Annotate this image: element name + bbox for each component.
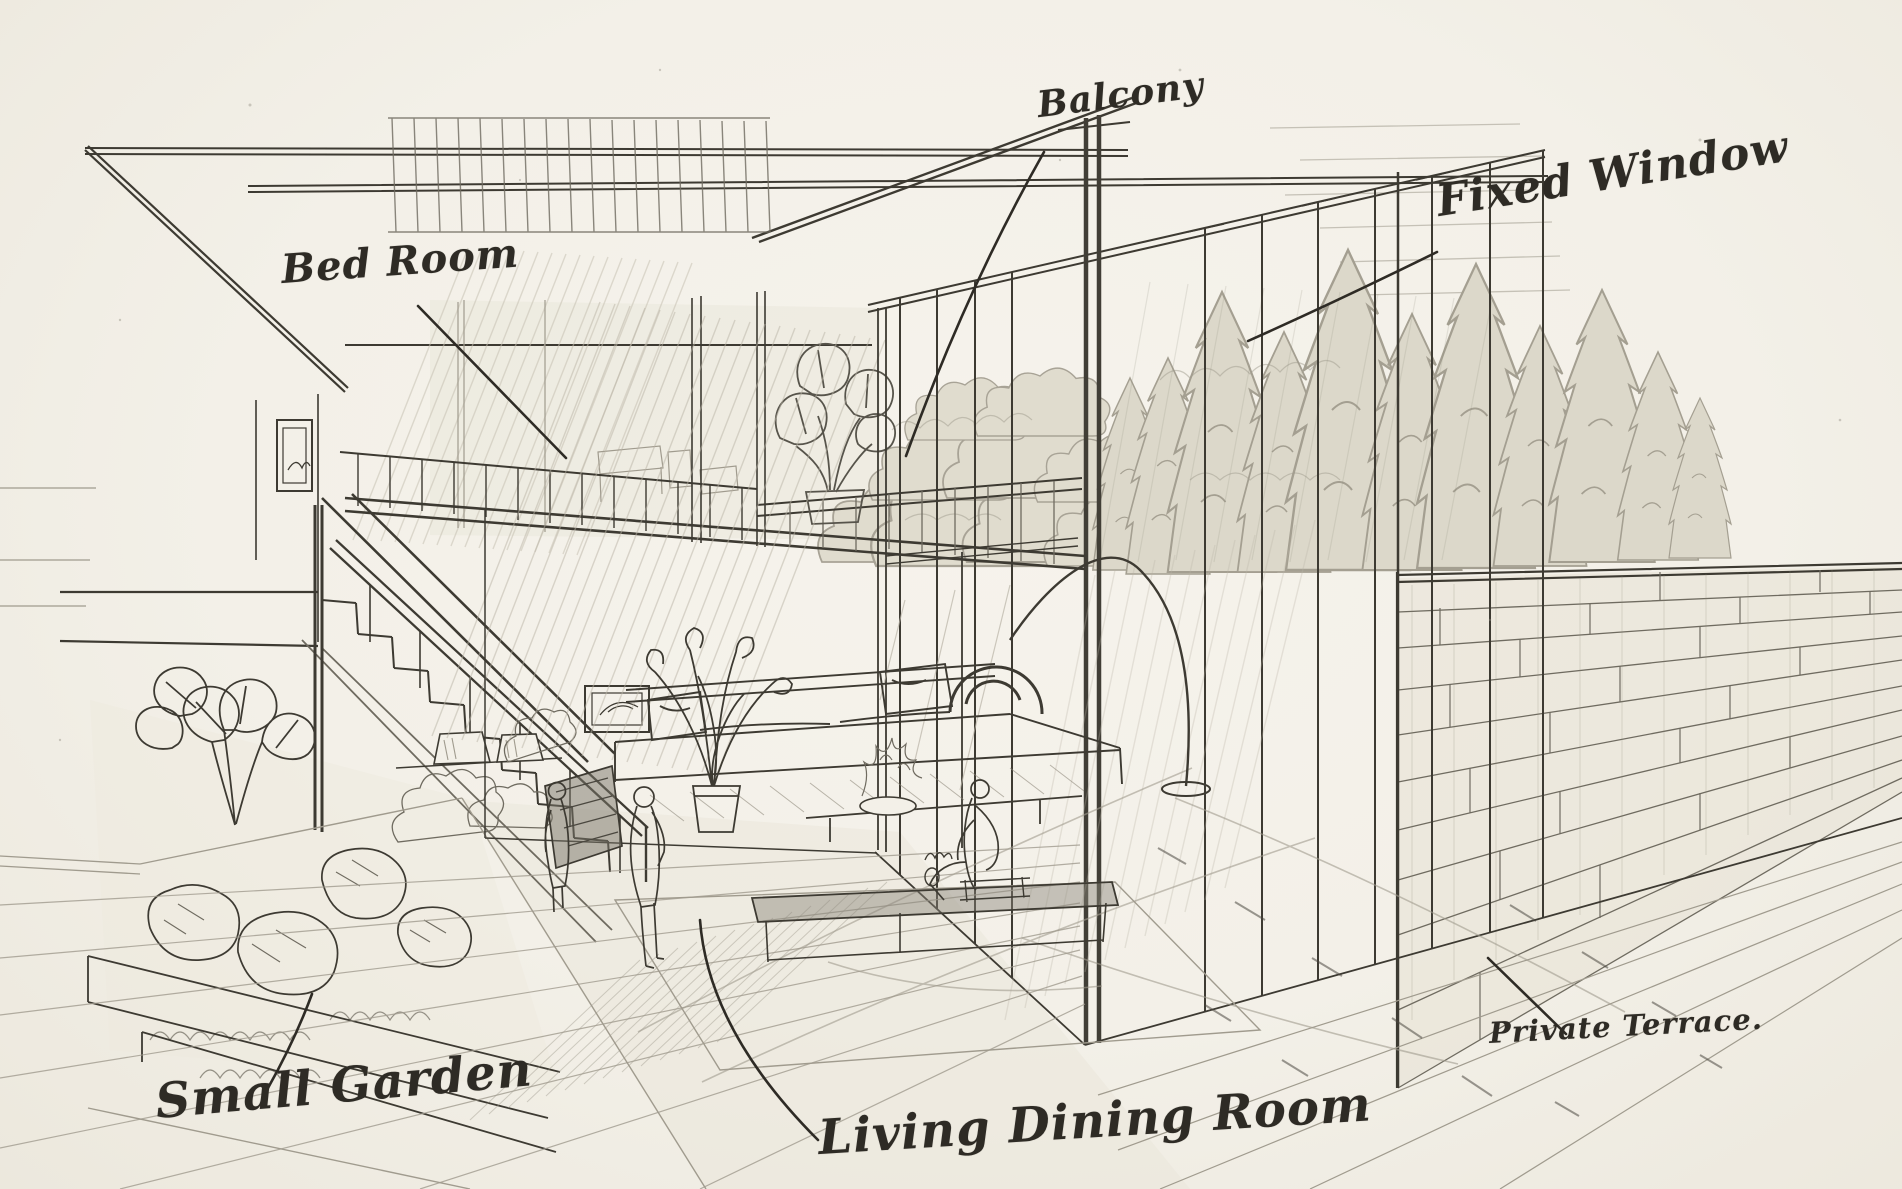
potted-plant-sketch [647, 628, 792, 832]
ceiling-slats [388, 118, 770, 232]
sofa-sketch [615, 664, 1122, 784]
flower-bowl-sketch [860, 797, 916, 815]
stair-wall-picture-frame [277, 420, 312, 491]
sketch-page: Bed Room Balcony Fixed Window Small Gard… [0, 0, 1902, 1189]
